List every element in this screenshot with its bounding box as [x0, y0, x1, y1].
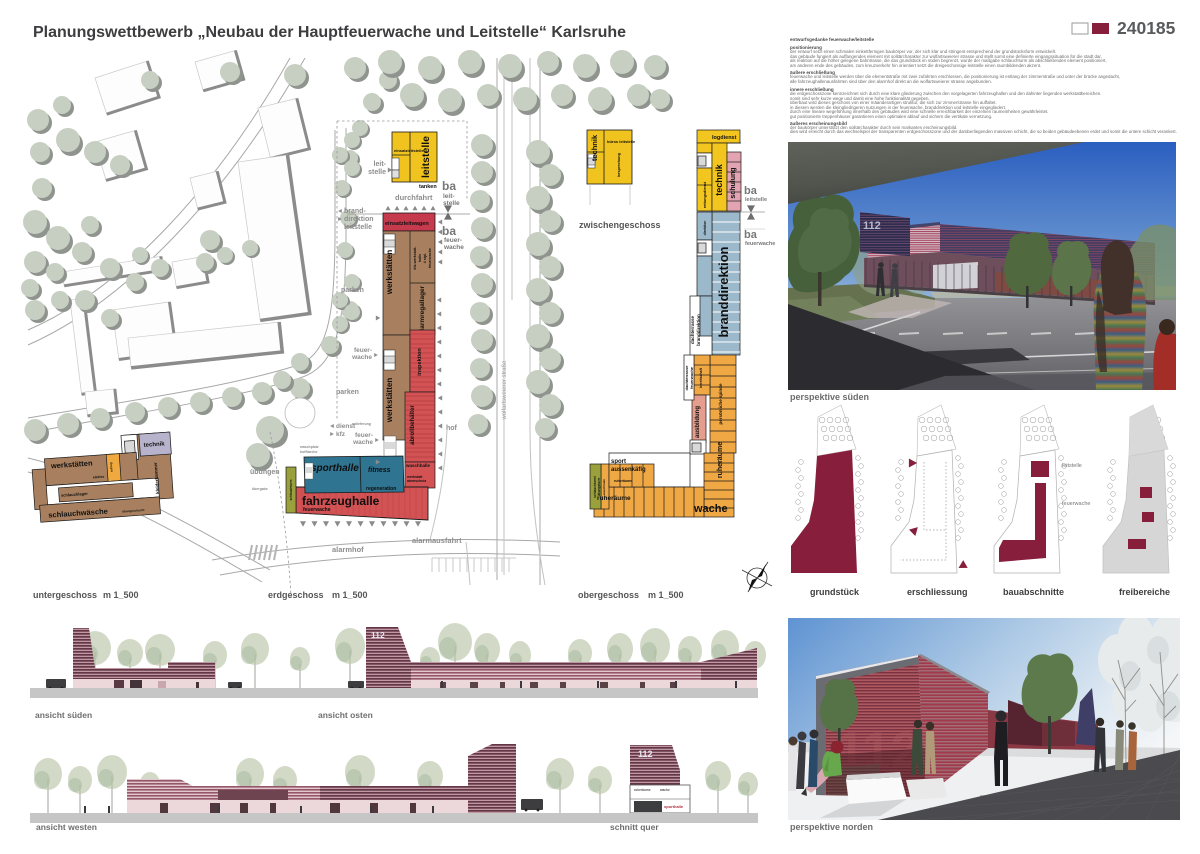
svg-text:112: 112 [371, 630, 385, 640]
svg-text:feuer-: feuer- [444, 237, 462, 244]
svg-text:ba: ba [442, 179, 456, 193]
svg-text:leitstelle: leitstelle [344, 224, 372, 231]
svg-text:übergabe: übergabe [252, 487, 268, 491]
svg-text:einsatzleitwagen: einsatzleitwagen [385, 221, 429, 227]
svg-text:übungsturm: übungsturm [597, 478, 601, 497]
svg-text:gut positionierte treppenhäuse: gut positionierte treppenhäuser garantie… [790, 114, 992, 119]
svg-text:feuerwache: feuerwache [745, 241, 775, 247]
svg-text:persönliche spinde: persönliche spinde [718, 383, 723, 425]
svg-text:ba: ba [744, 185, 758, 197]
svg-text:obergeschoss: obergeschoss [578, 590, 639, 600]
svg-text:fitness: fitness [368, 467, 391, 474]
svg-text:leitstelle: leitstelle [1062, 463, 1082, 469]
svg-text:wache: wache [659, 788, 670, 792]
svg-text:112: 112 [863, 220, 881, 232]
svg-text:regeneration: regeneration [366, 486, 396, 492]
svg-text:ruheräume: ruheräume [614, 479, 632, 483]
svg-text:4 stpl.: 4 stpl. [423, 253, 427, 263]
svg-text:übungen: übungen [250, 469, 280, 476]
svg-text:ausbildung: ausbildung [695, 406, 701, 438]
svg-text:kfz: kfz [336, 431, 346, 438]
svg-text:rettungsdienst: rettungsdienst [703, 181, 707, 208]
svg-text:werkstätten: werkstätten [385, 378, 394, 424]
svg-text:m 1_500: m 1_500 [648, 590, 684, 600]
svg-text:direktion: direktion [703, 221, 707, 236]
svg-text:240185: 240185 [1117, 18, 1176, 38]
svg-text:alarmregallager: alarmregallager [419, 285, 426, 334]
svg-text:freibereiche: freibereiche [1119, 587, 1170, 597]
svg-text:brand-: brand- [344, 208, 366, 215]
svg-text:einsatzleitstelle: einsatzleitstelle [394, 148, 424, 153]
svg-text:zwischengeschoss: zwischengeschoss [579, 220, 661, 230]
svg-text:grundstück: grundstück [810, 587, 860, 597]
svg-text:wache: wache [352, 439, 373, 446]
svg-text:ruheräume: ruheräume [717, 442, 724, 478]
svg-text:wolfartsweierer straße: wolfartsweierer straße [502, 360, 508, 421]
svg-text:halle: halle [418, 254, 422, 262]
svg-text:alarmausfahrt: alarmausfahrt [412, 536, 462, 545]
svg-text:branddirektion: branddirektion [716, 246, 731, 337]
svg-text:am anderen ende des gebäudes,: am anderen ende des gebäudes, zum kreuzv… [790, 63, 1041, 68]
svg-text:schnitt quer: schnitt quer [610, 822, 659, 832]
svg-text:feuer-: feuer- [354, 347, 372, 354]
svg-text:technik: technik [590, 134, 599, 161]
svg-text:werkstätten: werkstätten [385, 250, 394, 296]
svg-text:ba: ba [744, 229, 758, 241]
svg-text:anlieferung: anlieferung [352, 422, 371, 426]
svg-text:abrollbehälter: abrollbehälter [410, 405, 416, 445]
svg-text:sporthalle: sporthalle [311, 463, 359, 474]
svg-text:leitstelle: leitstelle [745, 197, 767, 203]
svg-text:ansicht osten: ansicht osten [318, 710, 373, 720]
svg-text:atemschutz: atemschutz [407, 479, 427, 483]
svg-text:schulung: schulung [730, 167, 737, 198]
svg-text:m 1_500: m 1_500 [103, 590, 139, 600]
svg-text:technik: technik [714, 163, 724, 196]
svg-text:erdgeschoss: erdgeschoss [268, 590, 324, 600]
svg-text:branddirektion: branddirektion [696, 314, 701, 346]
svg-text:sport: sport [611, 459, 626, 465]
svg-text:waschhalle: waschhalle [602, 479, 606, 496]
svg-text:hofflaeche: hofflaeche [300, 450, 318, 454]
svg-text:feuerwache: feuerwache [303, 507, 331, 513]
svg-text:entwurfsgedanke feuerwache/lei: entwurfsgedanke feuerwache/leitstelle [790, 37, 874, 42]
svg-text:logdienst: logdienst [712, 135, 737, 141]
svg-text:ba: ba [442, 224, 456, 238]
svg-text:feuer-: feuer- [355, 432, 373, 439]
svg-text:schlauchturm: schlauchturm [289, 479, 293, 500]
svg-text:ruheräume: ruheräume [597, 495, 631, 502]
svg-text:dies wird erreicht durch das w: dies wird erreicht durch das wechselspie… [790, 129, 1177, 134]
svg-text:büros leitstelle: büros leitstelle [607, 139, 636, 144]
svg-text:direktion: direktion [344, 216, 374, 223]
svg-text:fahrzeughalle: fahrzeughalle [302, 494, 380, 508]
svg-text:112: 112 [638, 749, 653, 759]
svg-text:leit-: leit- [374, 161, 387, 168]
svg-text:ansicht westen: ansicht westen [36, 822, 97, 832]
svg-text:erschliessung: erschliessung [907, 587, 968, 597]
svg-text:sporthalle: sporthalle [664, 804, 684, 809]
svg-text:feuerwache: feuerwache [1062, 501, 1090, 507]
svg-text:bereitschaft: bereitschaft [699, 367, 703, 388]
svg-text:tanken: tanken [419, 184, 437, 190]
svg-text:dachterrasse: dachterrasse [690, 316, 695, 345]
svg-text:alle fahrzeughallenausfahrten: alle fahrzeughallenausfahrten sind über … [790, 79, 992, 84]
svg-text:leitstelle: leitstelle [420, 136, 432, 178]
svg-text:wache: wache [443, 244, 464, 251]
svg-text:aufzug: aufzug [109, 462, 114, 472]
svg-text:aussenkäfig: aussenkäfig [611, 467, 646, 473]
svg-text:untergeschoss: untergeschoss [33, 590, 97, 600]
svg-text:kfz-werkstatt-: kfz-werkstatt- [413, 246, 417, 270]
svg-text:parken: parken [341, 287, 364, 294]
svg-text:inspektion: inspektion [417, 348, 423, 376]
svg-text:stelle: stelle [368, 169, 386, 176]
svg-text:stelle: stelle [443, 200, 460, 207]
svg-text:feuerwache: feuerwache [428, 248, 432, 268]
svg-text:waschplatz: waschplatz [299, 445, 319, 449]
svg-text:ansicht süden: ansicht süden [35, 710, 92, 720]
svg-text:ruheräume: ruheräume [634, 788, 651, 792]
svg-text:waschhalle: waschhalle [405, 463, 431, 468]
svg-text:besprechung: besprechung [617, 152, 621, 177]
svg-text:m 1_500: m 1_500 [332, 590, 368, 600]
svg-text:elektro: elektro [93, 475, 105, 480]
svg-text:wache: wache [351, 354, 372, 361]
svg-text:Planungswettbewerb „Neubau der: Planungswettbewerb „Neubau der Hauptfeue… [33, 24, 626, 41]
svg-text:wache: wache [693, 503, 728, 515]
svg-text:hof: hof [446, 425, 458, 432]
svg-text:alarmhof: alarmhof [332, 545, 364, 554]
svg-text:parken: parken [336, 389, 359, 396]
svg-text:feuerwache: feuerwache [689, 366, 694, 389]
svg-text:perspektive süden: perspektive süden [790, 392, 869, 402]
svg-text:bauabschnitte: bauabschnitte [1003, 587, 1064, 597]
svg-text:durchfahrt: durchfahrt [395, 193, 433, 202]
svg-text:perspektive norden: perspektive norden [790, 822, 873, 832]
svg-text:leit-: leit- [443, 193, 455, 200]
